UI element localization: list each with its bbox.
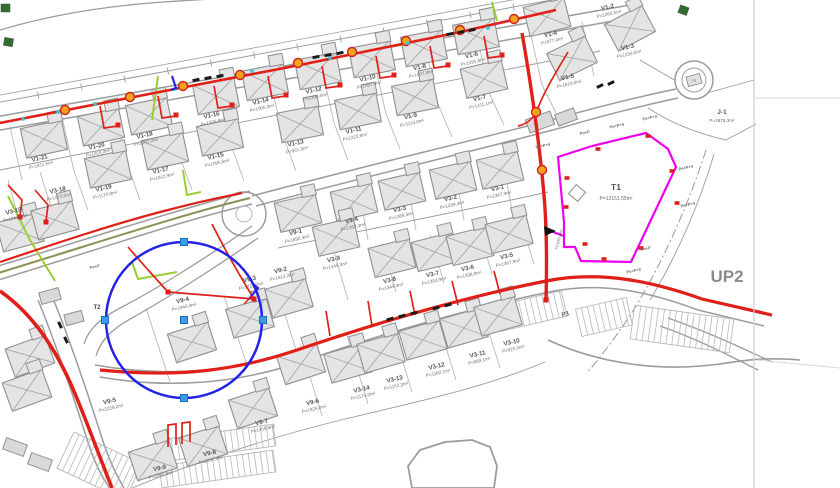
cable-connection-mark: [670, 169, 675, 173]
green-utility-box: [3, 37, 13, 46]
t1-inner-structure: [569, 185, 586, 202]
plot-label: V3-5P=1367,9m²: [494, 250, 522, 268]
house-footprint: [483, 204, 534, 253]
dimension-tick: [297, 44, 298, 51]
existing-building: [39, 288, 61, 305]
garage-body: [455, 151, 471, 165]
parking-stall-line: [536, 297, 542, 322]
special-label: T2: [93, 305, 101, 311]
cyan-marker: [56, 110, 59, 113]
cable-connection-mark: [675, 201, 680, 205]
water-branch-red: [326, 311, 330, 336]
house-footprint: [366, 228, 417, 277]
parking-stall-line: [260, 452, 263, 474]
parking-strip: [576, 298, 633, 337]
cyan-marker: [406, 41, 409, 44]
selection-grip[interactable]: [260, 317, 267, 324]
culdesac-island: [236, 206, 252, 222]
car-tick: [336, 51, 343, 55]
plot-label: V3-10P=915,0m²: [500, 336, 525, 353]
road-edge-line: [660, 326, 758, 370]
parking-stall-line: [642, 307, 647, 341]
terrain-blob-outline: [408, 440, 497, 488]
parking-outline: [576, 298, 633, 337]
parcel-boundary-line: [74, 171, 88, 210]
garage-body: [427, 19, 443, 32]
cyan-marker: [328, 56, 331, 59]
garage-body: [375, 30, 391, 43]
hydrant-node: [500, 53, 505, 58]
dimension-tick: [513, 4, 514, 11]
parcel-boundary-line: [438, 104, 452, 137]
plot-label: V9-4P=1940,3m²: [170, 294, 198, 312]
hydrant-node: [252, 297, 257, 302]
special-label: T1: [611, 182, 621, 192]
plot-label: V9-2P=1612,2m²: [268, 264, 296, 282]
parking-stall-line: [695, 314, 700, 348]
parking-stall-line: [636, 306, 641, 340]
manhole: [348, 48, 357, 57]
parking-stall-line: [690, 314, 695, 348]
parcel-boundary-line: [10, 126, 22, 180]
garage-body: [168, 122, 184, 136]
parking-stall-line: [254, 453, 257, 475]
cyan-marker: [93, 102, 96, 105]
plot-label: V3-13P=1152,2m²: [382, 373, 409, 391]
parking-stall-line: [553, 292, 559, 317]
cable-connection-mark: [565, 176, 570, 180]
hydrant-node: [446, 63, 451, 68]
parking-stall-line: [236, 455, 239, 477]
storeys-label: Po+P: [579, 129, 590, 136]
road-edge-line: [650, 154, 714, 300]
road-edge-line: [548, 340, 800, 367]
plot-label: V3-6P=1338,9m²: [455, 262, 483, 280]
cable-connection-mark: [602, 257, 607, 261]
parking-stall-line: [611, 301, 617, 328]
existing-building: [28, 453, 53, 472]
cable-connection-mark: [646, 134, 651, 138]
green-utility-box: [1, 4, 10, 12]
cyan-marker: [486, 26, 489, 29]
special-label: J-1: [717, 109, 727, 116]
manhole: [532, 108, 541, 117]
hydrant-node: [284, 93, 289, 98]
parcel-boundary-line: [386, 114, 400, 149]
selection-grip[interactable]: [181, 317, 188, 324]
special-label: TS 10/0,4 kV: [554, 229, 563, 251]
parking-strip: [630, 305, 734, 353]
hydrant-node: [116, 123, 121, 128]
plot-label: V3-7P=1283,9m²: [420, 268, 448, 286]
storeys-label: Po+P+4: [609, 121, 625, 129]
garage-body: [300, 184, 316, 198]
manhole: [538, 166, 547, 175]
car-tick: [607, 80, 615, 86]
parking-stall-line: [524, 299, 530, 324]
selection-grip[interactable]: [181, 395, 188, 402]
selection-grip[interactable]: [181, 239, 188, 246]
house-footprint: [275, 95, 325, 142]
parking-stall-line: [79, 442, 96, 478]
manhole: [510, 15, 519, 24]
plot-label: V9-6P=1926,0m²: [300, 396, 328, 414]
parking-stall-line: [581, 308, 587, 335]
parking-stall-line: [73, 440, 90, 476]
existing-building: [3, 438, 28, 457]
flow-arrowhead: [544, 226, 556, 236]
special-label: P=1876,3m²: [709, 118, 735, 123]
parking-stall-line: [587, 307, 593, 334]
road-edge-line: [0, 0, 258, 30]
parking-stall-line: [224, 457, 227, 479]
parking-stall-line: [654, 309, 659, 343]
cyan-marker: [250, 69, 253, 72]
house-footprint: [240, 53, 290, 100]
parking-stall-line: [678, 312, 683, 346]
garage-body: [356, 173, 372, 187]
hydrant-node: [174, 113, 179, 118]
parking-stall-line: [530, 298, 536, 323]
road-edge-line: [648, 108, 726, 140]
dimension-tick: [167, 68, 168, 75]
car-tick: [446, 32, 453, 36]
hydrant-node: [166, 290, 171, 295]
parking-stall-line: [605, 302, 611, 329]
parking-stall-line: [266, 451, 269, 473]
existing-building: [64, 310, 84, 325]
dimension-tick: [340, 36, 341, 43]
green-utility-box: [678, 5, 689, 16]
hydrant-node: [338, 83, 343, 88]
house-footprint: [427, 151, 478, 200]
parking-stall-line: [230, 430, 233, 452]
house-footprint: [164, 311, 217, 362]
parking-stall-line: [183, 463, 186, 485]
parking-stall-line: [599, 304, 605, 331]
parking-stall-line: [648, 308, 653, 342]
special-label: UP2: [710, 267, 743, 286]
manhole: [61, 106, 70, 115]
garage-body: [111, 140, 127, 154]
cable-connection-mark: [564, 205, 569, 209]
cable-connection-mark: [596, 147, 601, 151]
plot-label: V3-8P=1349,3m²: [377, 274, 405, 292]
cyan-marker: [21, 117, 24, 120]
special-label: P1: [561, 310, 571, 319]
parking-stall-line: [218, 458, 221, 480]
parking-stall-line: [593, 305, 599, 332]
cable-connection-mark: [583, 242, 588, 246]
special-label: P=12151,55m²: [600, 196, 633, 202]
parking-stall-line: [242, 428, 245, 450]
parking-stall-line: [62, 435, 79, 471]
house-footprint: [75, 98, 125, 146]
hydrant-node: [544, 298, 549, 303]
plot-label: V3-12P=1182,1m²: [424, 360, 451, 378]
plot-label: V9-5P=2228,2m²: [97, 395, 125, 413]
parking-stall-line: [230, 456, 233, 478]
plot-label: V3-9P=1445,3m²: [321, 253, 349, 271]
parking-stall-line: [248, 454, 251, 476]
parking-stall-line: [236, 429, 239, 451]
storeys-label: Po+P: [640, 245, 651, 252]
dimension-tick: [81, 84, 82, 91]
parking-stall-line: [68, 437, 85, 473]
plot-label: V3-11P=969,1m²: [466, 348, 491, 365]
storeys-label: Po+P+2: [626, 266, 642, 274]
storeys-label: Po+P+4: [680, 200, 696, 208]
hydrant-node: [230, 103, 235, 108]
storeys-label: Po+P+4: [678, 163, 694, 171]
cad-drawing: V1-21P=1811,5m²V1-20P=1019,0m²V1-18P=100…: [0, 0, 840, 488]
manhole: [179, 82, 188, 91]
garage-body: [404, 162, 420, 176]
garage-body: [268, 53, 284, 66]
dimension-tick: [470, 12, 471, 19]
car-tick: [596, 83, 604, 89]
storeys-label: Po+P: [89, 263, 100, 270]
parking-stall-line: [666, 310, 671, 344]
house-footprint: [225, 377, 278, 428]
storeys-label: Po+P+4: [642, 113, 658, 121]
manhole: [236, 71, 245, 80]
parking-stall-line: [684, 313, 689, 347]
plot-label: V3-14P=1174,0m²: [349, 383, 376, 401]
parking-stall-line: [616, 300, 622, 327]
parcel-boundary-line: [542, 85, 556, 113]
parking-stall-line: [719, 318, 724, 352]
water-branch-red: [368, 301, 372, 326]
hydrant-node: [44, 220, 49, 225]
dimension-tick: [38, 92, 39, 99]
road-edge-line: [726, 124, 756, 140]
manhole: [126, 93, 135, 102]
parcel-boundary-line: [530, 31, 542, 85]
special-label: TR: [692, 79, 697, 83]
garage-body: [479, 7, 495, 20]
parking-stall-line: [242, 454, 245, 476]
dimension-tick: [210, 60, 211, 67]
dimension-tick: [254, 52, 255, 59]
selection-grip[interactable]: [102, 317, 109, 324]
faint-margin-line: [757, 360, 840, 368]
manhole: [294, 59, 303, 68]
site-plan-canvas: V1-21P=1811,5m²V1-20P=1019,0m²V1-18P=100…: [0, 0, 840, 488]
dimension-tick: [124, 76, 125, 83]
parking-stall-line: [713, 317, 718, 351]
hydrant-node: [392, 73, 397, 78]
parking-stall-line: [725, 319, 730, 353]
parking-stall-line: [672, 311, 677, 345]
garage-body: [502, 141, 518, 155]
